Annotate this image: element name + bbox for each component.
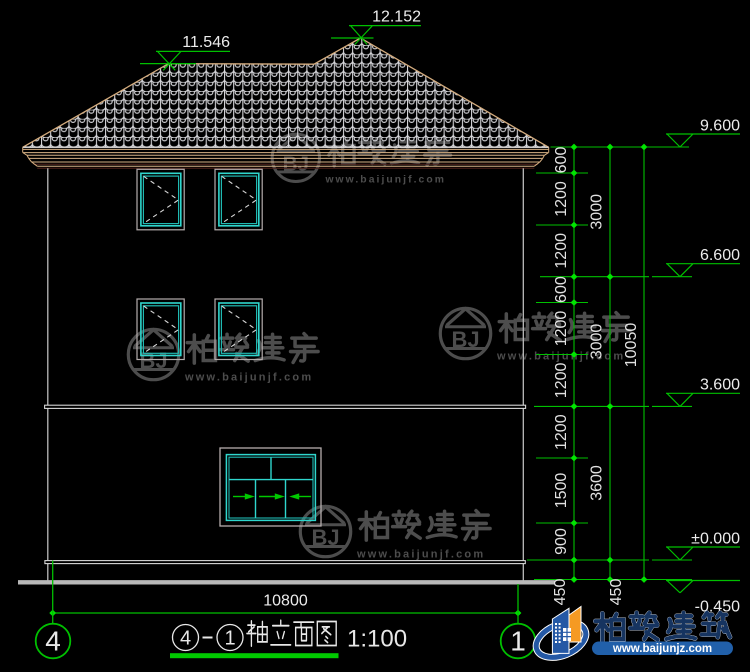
svg-text:www.baijunjz.com: www.baijunjz.com (612, 643, 712, 655)
svg-text:1200: 1200 (553, 414, 570, 450)
svg-text:11.546: 11.546 (182, 34, 230, 51)
svg-text:1200: 1200 (553, 233, 570, 269)
svg-text:12.152: 12.152 (372, 9, 421, 26)
svg-text:10050: 10050 (623, 323, 640, 368)
svg-text:3000: 3000 (589, 194, 606, 230)
svg-text:450: 450 (552, 579, 569, 606)
svg-text:3.600: 3.600 (700, 377, 740, 394)
svg-text:450: 450 (608, 579, 625, 606)
svg-text:3000: 3000 (589, 324, 606, 360)
svg-text:4: 4 (45, 626, 61, 657)
svg-text:1500: 1500 (553, 473, 570, 509)
svg-text:9.600: 9.600 (700, 118, 740, 135)
svg-text:600: 600 (553, 276, 570, 303)
svg-text:1200: 1200 (553, 311, 570, 347)
svg-text:4: 4 (180, 628, 191, 650)
svg-text:-0.450: -0.450 (695, 599, 740, 616)
svg-text:3600: 3600 (589, 465, 606, 501)
svg-text:6.600: 6.600 (700, 247, 740, 264)
svg-text:900: 900 (553, 528, 570, 555)
svg-text:1200: 1200 (553, 363, 570, 399)
svg-text:1200: 1200 (553, 181, 570, 217)
svg-text:10800: 10800 (263, 593, 308, 610)
svg-text:1: 1 (224, 628, 235, 650)
svg-text:600: 600 (553, 147, 570, 174)
svg-text:±0.000: ±0.000 (691, 531, 740, 548)
svg-text:1:100: 1:100 (347, 626, 407, 653)
svg-text:1: 1 (510, 626, 526, 657)
